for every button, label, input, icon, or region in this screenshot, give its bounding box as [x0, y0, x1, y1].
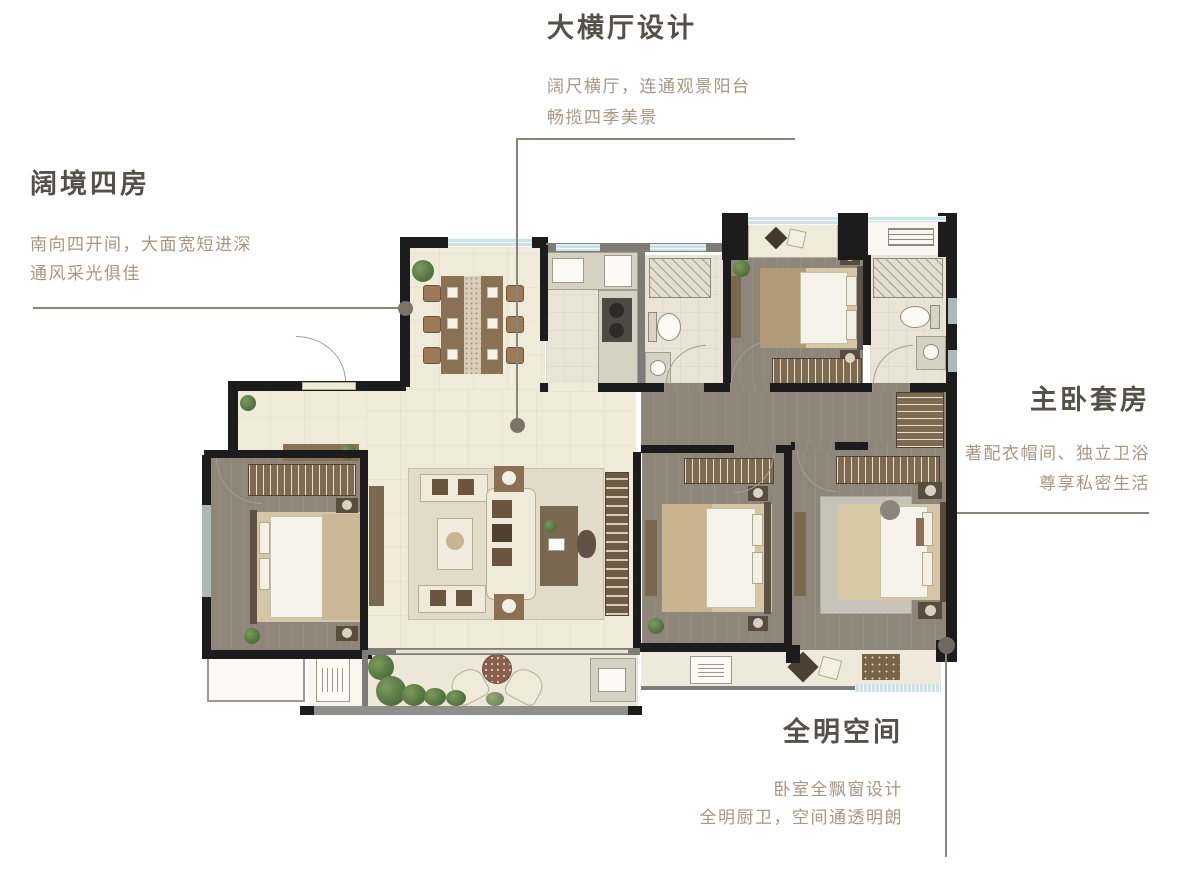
- balcony-plant: [424, 688, 446, 706]
- annotation-left-title: 阔境四房: [30, 170, 252, 200]
- annotation-right-title: 主卧套房: [965, 386, 1150, 416]
- kitchen-opening: [548, 383, 598, 392]
- lamp: [925, 485, 936, 496]
- wardrobe: [248, 464, 356, 496]
- washer-detail: [698, 663, 724, 677]
- lamp: [753, 488, 763, 498]
- accent-pillow: [916, 518, 924, 546]
- bed-pillow: [752, 552, 763, 584]
- place-setting: [487, 287, 498, 298]
- place-setting: [487, 318, 498, 329]
- bedroom-north-bay-window: [748, 216, 838, 225]
- west-window: [202, 505, 211, 597]
- wall-kitchen-west: [540, 245, 548, 341]
- kitchen-sink: [552, 258, 584, 283]
- plant: [240, 395, 256, 411]
- annotation-bottom-right-line1: 卧室全飘窗设计: [700, 781, 904, 800]
- place-setting: [487, 349, 498, 360]
- wall: [202, 650, 372, 659]
- balcony-plant: [486, 692, 504, 706]
- pillow-light: [786, 228, 806, 248]
- plant: [648, 618, 664, 634]
- dining-window: [448, 238, 532, 247]
- master-wardrobe: [836, 456, 940, 484]
- plant: [412, 260, 434, 282]
- annotation-left: 阔境四房 南向四开间，大面宽短进深 通风采光俱佳: [30, 170, 252, 284]
- dining-chair: [506, 347, 524, 364]
- sink-basin: [650, 360, 666, 376]
- entry-doormat: [302, 382, 356, 390]
- headboard: [250, 510, 257, 624]
- toilet-tank: [648, 312, 657, 342]
- laundry-detail: [322, 668, 344, 692]
- wall: [641, 643, 787, 652]
- annotation-top: 大横厅设计 阔尺横厅，连通观景阳台 畅揽四季美景: [547, 14, 751, 128]
- decor-mat: [862, 654, 900, 680]
- fridge: [604, 255, 632, 287]
- balcony-table: [482, 654, 512, 684]
- bookshelf: [605, 472, 629, 616]
- annotation-right: 主卧套房 著配衣帽间、独立卫浴 尊享私密生活: [965, 386, 1150, 494]
- lamp: [845, 353, 855, 363]
- side-table-decor: [502, 471, 516, 485]
- master-door-opening: [795, 442, 835, 450]
- wall-pillar: [838, 213, 868, 260]
- radiator-icon: [888, 228, 934, 246]
- ac-platform: [207, 656, 305, 702]
- annotation-bottom-right: 全明空间 卧室全飘窗设计 全明厨卫，空间通透明朗: [700, 718, 904, 828]
- burner: [609, 303, 624, 318]
- bed-blanket: [662, 504, 712, 612]
- bed-pillow: [752, 514, 763, 546]
- annotation-bottom-right-line2: 全明厨卫，空间通透明朗: [700, 809, 904, 828]
- annotation-top-line1: 阔尺横厅，连通观景阳台: [547, 78, 751, 97]
- toilet-tank: [930, 305, 940, 329]
- lamp: [925, 605, 936, 616]
- wall-pillar: [628, 706, 642, 715]
- sofa-pillow: [458, 479, 474, 495]
- sofa-cushion: [492, 524, 512, 542]
- balcony-plant: [446, 690, 466, 706]
- desk-plant: [544, 520, 556, 532]
- sofa-pillow: [430, 590, 446, 606]
- leader-line-top-v: [516, 138, 518, 425]
- floor-plan-page: 大横厅设计 阔尺横厅，连通观景阳台 畅揽四季美景 阔境四房 南向四开间，大面宽短…: [0, 0, 1180, 891]
- bathroom-door-opening: [664, 383, 704, 392]
- annotation-left-line2: 通风采光俱佳: [30, 265, 252, 284]
- toilet: [657, 313, 681, 341]
- wall-bath-bedroom: [723, 255, 731, 388]
- table-decor: [446, 532, 464, 550]
- annotation-right-line1: 著配衣帽间、独立卫浴: [965, 445, 1150, 464]
- plant: [244, 628, 260, 644]
- tv-cabinet: [369, 486, 384, 606]
- bed-pillow: [846, 276, 857, 306]
- shower-area: [649, 258, 711, 298]
- east-window: [948, 350, 957, 372]
- table-runner: [464, 276, 481, 374]
- leader-line-bottom-v: [945, 645, 947, 857]
- desk-chair: [577, 530, 596, 558]
- leader-line-top-h: [517, 138, 795, 140]
- wall-laundry: [362, 650, 368, 706]
- place-setting: [447, 349, 458, 360]
- wall-bedroom-ensuite: [863, 255, 871, 345]
- bathroom-window: [650, 244, 706, 251]
- sofa-pillow: [456, 590, 472, 606]
- leader-dot-living: [510, 418, 525, 433]
- sink-basin: [923, 344, 939, 360]
- ensuite-toilet: [900, 306, 930, 328]
- bed-pillow: [259, 522, 270, 554]
- bed-blanket: [322, 514, 360, 620]
- bed-pillow: [922, 552, 933, 586]
- round-cushion: [880, 500, 900, 520]
- bed-mattress: [270, 516, 326, 618]
- headboard: [764, 502, 771, 614]
- wall-pillar: [300, 706, 314, 715]
- sofa-cushion: [492, 500, 512, 518]
- plant: [733, 260, 750, 277]
- wall-kitchen-bath: [638, 250, 645, 385]
- entry-door-arc: [296, 336, 346, 382]
- wall: [360, 455, 368, 655]
- annotation-bottom-right-title: 全明空间: [700, 718, 904, 748]
- wall-middle-master: [784, 450, 792, 648]
- place-setting: [447, 287, 458, 298]
- master-bay-window: [855, 684, 941, 692]
- wall-bedroom-west-north: [204, 450, 368, 458]
- balcony-plant: [402, 684, 426, 706]
- south-rail: [641, 686, 857, 690]
- bed-mattress: [800, 272, 848, 344]
- annotation-left-line1: 南向四开间，大面宽短进深: [30, 236, 252, 255]
- bed-mattress: [706, 508, 756, 608]
- sofa-pillow: [432, 479, 448, 495]
- bedroom-north-door-opening: [730, 383, 770, 392]
- balcony-sink: [598, 668, 626, 692]
- bedroom-middle-door-opening: [734, 445, 776, 453]
- laptop: [548, 538, 565, 551]
- ensuite-shower: [873, 258, 943, 298]
- balcony-sliding-door: [396, 649, 628, 654]
- sofa-cushion: [492, 548, 512, 566]
- bed-pillow: [259, 558, 270, 590]
- wall-pillar: [722, 213, 748, 260]
- wall-living-bedrooms: [633, 452, 641, 652]
- annotation-top-title: 大横厅设计: [547, 14, 751, 44]
- leader-dot-dining: [398, 301, 413, 316]
- dining-chair: [423, 285, 441, 302]
- bed-pillow: [846, 310, 857, 340]
- sofa-bench-top: [420, 474, 488, 502]
- leader-dot-bay: [938, 637, 955, 654]
- dresser: [645, 520, 657, 596]
- tv-bench: [794, 512, 806, 596]
- side-table-decor: [502, 599, 516, 613]
- leader-line-left: [33, 307, 405, 309]
- balcony-rail: [308, 706, 640, 715]
- dining-chair: [423, 316, 441, 333]
- lamp: [342, 500, 352, 510]
- bed-blanket: [838, 504, 886, 600]
- annotation-top-line2: 畅揽四季美景: [547, 109, 751, 128]
- leader-line-right: [957, 512, 1149, 514]
- lamp: [753, 618, 763, 628]
- east-window: [948, 298, 957, 324]
- wall: [228, 381, 238, 455]
- wall-pillar: [786, 645, 800, 663]
- ensuite-door-opening: [872, 383, 910, 392]
- annotation-right-line2: 尊享私密生活: [965, 475, 1150, 494]
- place-setting: [447, 318, 458, 329]
- kitchen-window: [556, 244, 600, 251]
- sofa-bench-bottom: [418, 585, 486, 613]
- burner: [609, 323, 624, 338]
- walk-in-closet-wardrobe: [896, 392, 944, 448]
- dining-chair: [506, 316, 524, 333]
- lamp: [342, 628, 352, 638]
- dining-chair: [423, 347, 441, 364]
- platform-window: [868, 216, 946, 222]
- dining-chair: [506, 285, 524, 302]
